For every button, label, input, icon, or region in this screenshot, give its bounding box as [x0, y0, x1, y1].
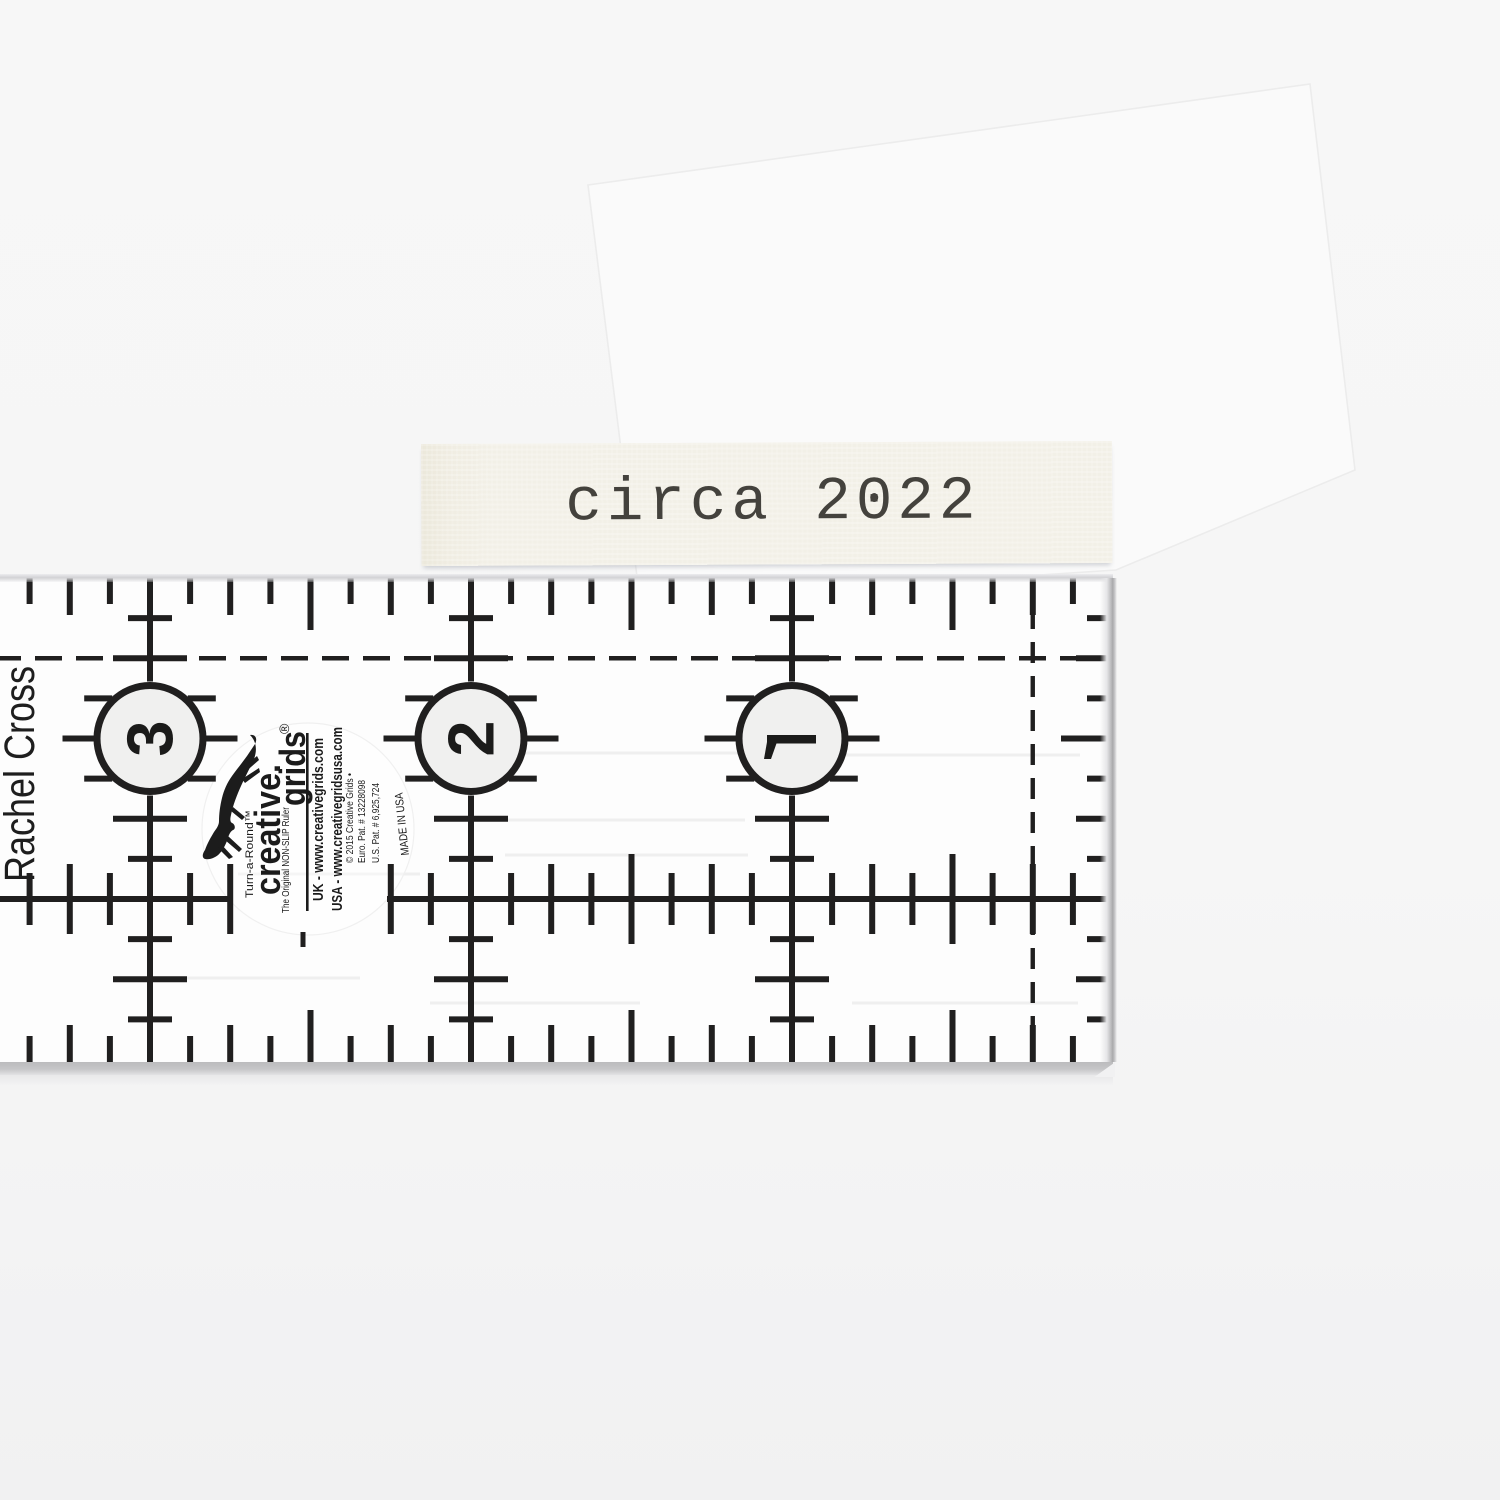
svg-text:Rachel Cross: Rachel Cross [0, 666, 44, 882]
svg-text:3: 3 [114, 720, 187, 756]
svg-text:2: 2 [435, 720, 508, 756]
svg-text:UK - www.creativegrids.com: UK - www.creativegrids.com [311, 738, 327, 901]
svg-text:Euro. Pat. # 13228098: Euro. Pat. # 13228098 [357, 780, 368, 863]
svg-text:The Original NON-SLIP Ruler: The Original NON-SLIP Ruler [281, 806, 292, 913]
svg-text:USA - www.creativegridsusa.com: USA - www.creativegridsusa.com [330, 727, 346, 911]
svg-text:U.S. Pat. # 6,925,724: U.S. Pat. # 6,925,724 [371, 783, 382, 863]
svg-text:®: ® [276, 723, 292, 734]
svg-text:© 2015 Creative Grids •: © 2015 Creative Grids • [345, 773, 356, 863]
